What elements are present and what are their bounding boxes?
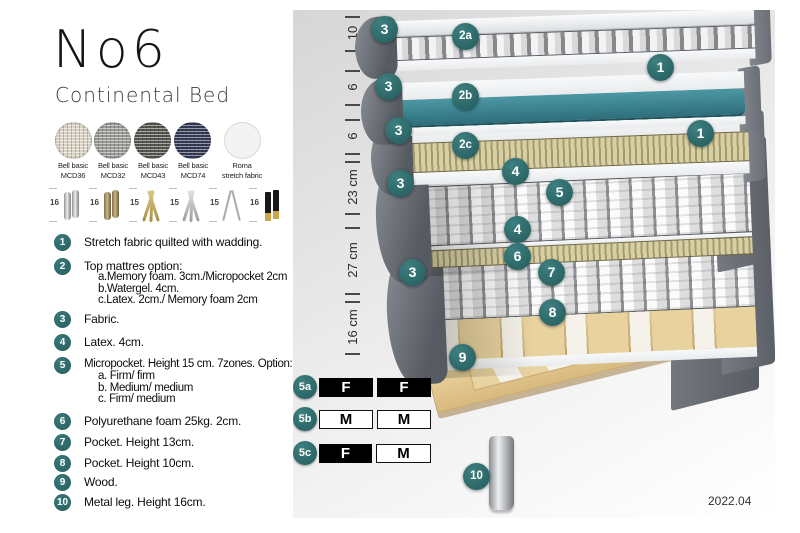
product-title: No6 bbox=[53, 20, 169, 80]
list-badge: 3 bbox=[54, 311, 71, 328]
gold-twisted-legs-icon bbox=[142, 190, 164, 221]
hairpin-legs-icon bbox=[222, 190, 244, 221]
fabric-swatch bbox=[134, 122, 171, 159]
layer-topper-2a bbox=[368, 10, 766, 74]
measurement-label: 23 cm bbox=[345, 158, 365, 216]
firmness-cell: M bbox=[376, 444, 431, 463]
firmness-badge-5a: 5a bbox=[293, 375, 317, 399]
measure-tick bbox=[345, 293, 360, 295]
list-badge: 4 bbox=[54, 334, 71, 351]
fabric-swatch bbox=[174, 122, 211, 159]
list-badge: 5 bbox=[54, 357, 71, 374]
measurement-label: 16 cm bbox=[345, 298, 365, 356]
list-sub: a. Firm/ firmb. Medium/ mediumc. Firm/ m… bbox=[98, 371, 193, 406]
list-text: Fabric. bbox=[84, 312, 119, 326]
bed-leg-front bbox=[489, 436, 514, 510]
chrome-cylinder-legs-icon bbox=[62, 190, 84, 221]
product-subtitle: Continental Bed bbox=[55, 83, 230, 107]
swatch-label: Romastretch fabric bbox=[216, 161, 268, 180]
page: No6 Continental Bed Bell basicMCD36 Bell… bbox=[0, 0, 800, 533]
firmness-cell: M bbox=[377, 410, 431, 429]
diagram-badge-1: 1 bbox=[687, 120, 714, 147]
bronze-cylinder-legs-icon bbox=[102, 190, 124, 221]
leg-height: 16 bbox=[250, 198, 259, 207]
firmness-cell: F bbox=[319, 444, 372, 463]
list-badge: 2 bbox=[54, 258, 71, 275]
leg-height: 15 bbox=[130, 198, 139, 207]
fabric-swatch bbox=[55, 122, 92, 159]
leg-option: 15 bbox=[208, 186, 246, 224]
list-sub: a.Memory foam. 3cm./Micropocket 2cmb.Wat… bbox=[98, 272, 287, 307]
firmness-cell: F bbox=[377, 378, 431, 397]
firmness-cell: F bbox=[319, 378, 373, 397]
list-badge: 7 bbox=[54, 434, 71, 451]
leg-height: 16 bbox=[90, 198, 99, 207]
leg-option: 16 bbox=[48, 186, 86, 224]
leg-height: 15 bbox=[210, 198, 219, 207]
diagram-badge-3: 3 bbox=[387, 170, 414, 197]
diagram-badge-8: 8 bbox=[539, 299, 566, 326]
swatch-label: Bell basicMCD74 bbox=[167, 161, 219, 180]
leg-height: 16 bbox=[50, 198, 59, 207]
list-badge: 9 bbox=[54, 474, 71, 491]
diagram-badge-2a: 2a bbox=[452, 23, 479, 50]
fabric-swatch bbox=[94, 122, 131, 159]
firmness-row-5a: F F bbox=[319, 378, 431, 397]
black-gold-legs-icon bbox=[262, 190, 284, 221]
diagram-badge-4: 4 bbox=[502, 158, 529, 185]
list-text: Latex. 4cm. bbox=[84, 335, 144, 349]
diagram-badge-5: 5 bbox=[546, 179, 573, 206]
diagram-badge-3: 3 bbox=[385, 117, 412, 144]
list-text: Wood. bbox=[84, 475, 117, 489]
measurement-label: 27 cm bbox=[345, 231, 365, 289]
list-text: Pocket. Height 13cm. bbox=[84, 435, 194, 449]
leg-option: 15 bbox=[128, 186, 166, 224]
diagram-badge-1: 1 bbox=[647, 54, 674, 81]
diagram-badge-6: 6 bbox=[504, 243, 531, 270]
version-label: 2022.04 bbox=[708, 494, 751, 508]
list-text: Polyurethane foam 25kg. 2cm. bbox=[84, 414, 241, 428]
firmness-row-5b: M M bbox=[319, 410, 431, 429]
diagram-badge-10: 10 bbox=[463, 463, 490, 490]
leg-option: 15 bbox=[168, 186, 206, 224]
diagram-badge-3: 3 bbox=[371, 16, 398, 43]
leg-height: 15 bbox=[170, 198, 179, 207]
firmness-cell: M bbox=[319, 410, 373, 429]
diagram-badge-2c: 2c bbox=[452, 132, 479, 159]
firmness-badge-5c: 5c bbox=[293, 441, 317, 465]
list-badge: 10 bbox=[54, 494, 71, 511]
diagram-badge-4: 4 bbox=[504, 216, 531, 243]
bed-diagram-panel: 10 6 6 23 cm 27 cm 16 cm bbox=[293, 10, 775, 518]
fabric-swatch bbox=[224, 122, 261, 159]
list-text: Micropocket. Height 15 cm. 7zones. Optio… bbox=[84, 358, 292, 370]
firmness-row-5c: F M bbox=[319, 444, 431, 463]
leg-option: 16 bbox=[88, 186, 126, 224]
list-badge: 8 bbox=[54, 455, 71, 472]
list-badge: 6 bbox=[54, 413, 71, 430]
list-badge: 1 bbox=[54, 234, 71, 251]
silver-twisted-legs-icon bbox=[182, 190, 204, 221]
diagram-badge-7: 7 bbox=[538, 259, 565, 286]
list-text: Pocket. Height 10cm. bbox=[84, 456, 194, 470]
measure-tick bbox=[345, 227, 360, 229]
diagram-badge-3: 3 bbox=[399, 259, 426, 286]
diagram-badge-9: 9 bbox=[449, 344, 476, 371]
list-text: Stretch fabric quilted with wadding. bbox=[84, 235, 262, 249]
diagram-badge-3: 3 bbox=[375, 73, 402, 100]
list-text: Metal leg. Height 16cm. bbox=[84, 495, 205, 509]
diagram-badge-2b: 2b bbox=[452, 83, 479, 110]
leg-option: 16 bbox=[248, 186, 286, 224]
firmness-badge-5b: 5b bbox=[293, 407, 317, 431]
